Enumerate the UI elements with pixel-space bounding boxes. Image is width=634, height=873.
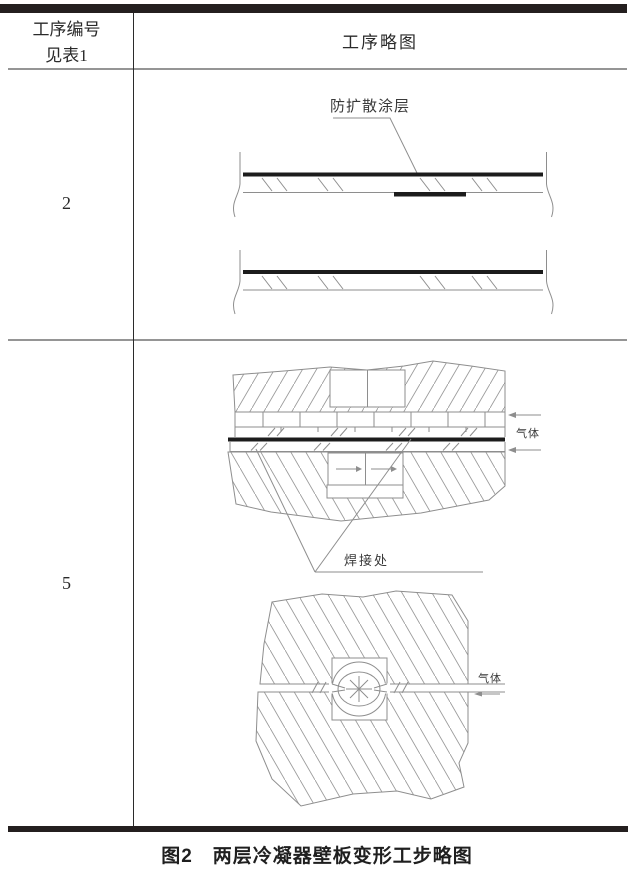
coating-label: 防扩散涂层 — [330, 95, 410, 116]
weld-location-label: 焊接处 — [344, 550, 389, 569]
step-number-5: 5 — [0, 573, 133, 594]
anti-diffusion-coating-bar — [394, 192, 466, 197]
header-process-number: 工序编号 见表1 — [0, 17, 133, 69]
plate2-hatch-ticks — [262, 276, 497, 289]
figure-page: 工序编号 见表1 工序略图 2 5 防扩散涂层 气体 焊接处 气体 图2 两层冷… — [0, 0, 634, 873]
table-bottom-bar — [8, 826, 628, 832]
plate1-right-break — [547, 152, 554, 217]
header-process-number-line1: 工序编号 — [0, 17, 133, 43]
gas-label-upper: 气体 — [516, 425, 540, 441]
coating-leader-line — [333, 118, 418, 175]
plate1-top-surface — [243, 173, 543, 177]
plate1-left-break — [233, 152, 240, 217]
lower-cavity-step — [327, 485, 403, 498]
table-top-bar — [0, 4, 627, 13]
step5-bulge-sketch — [256, 591, 505, 806]
step-number-2: 2 — [0, 193, 133, 214]
header-process-number-line2: 见表1 — [0, 43, 133, 69]
header-sketch-column-label: 工序略图 — [342, 28, 418, 53]
strip-ticks-lower — [251, 443, 459, 451]
step5-weld-sketch — [228, 361, 541, 572]
wall-plate-line — [228, 438, 505, 442]
strip-ticks-upper — [268, 428, 477, 436]
gas-label-lower: 气体 — [478, 670, 502, 686]
brick-course — [235, 412, 505, 427]
step2-sketch — [233, 118, 553, 314]
plate2-right-break — [547, 250, 554, 314]
plate2-top-surface — [243, 270, 543, 274]
header-sketch-column: 工序略图 — [133, 13, 627, 67]
plate2-left-break — [233, 250, 240, 314]
figure-caption: 图2 两层冷凝器壁板变形工步略图 — [0, 841, 634, 868]
plate1-hatch-ticks — [262, 178, 497, 191]
